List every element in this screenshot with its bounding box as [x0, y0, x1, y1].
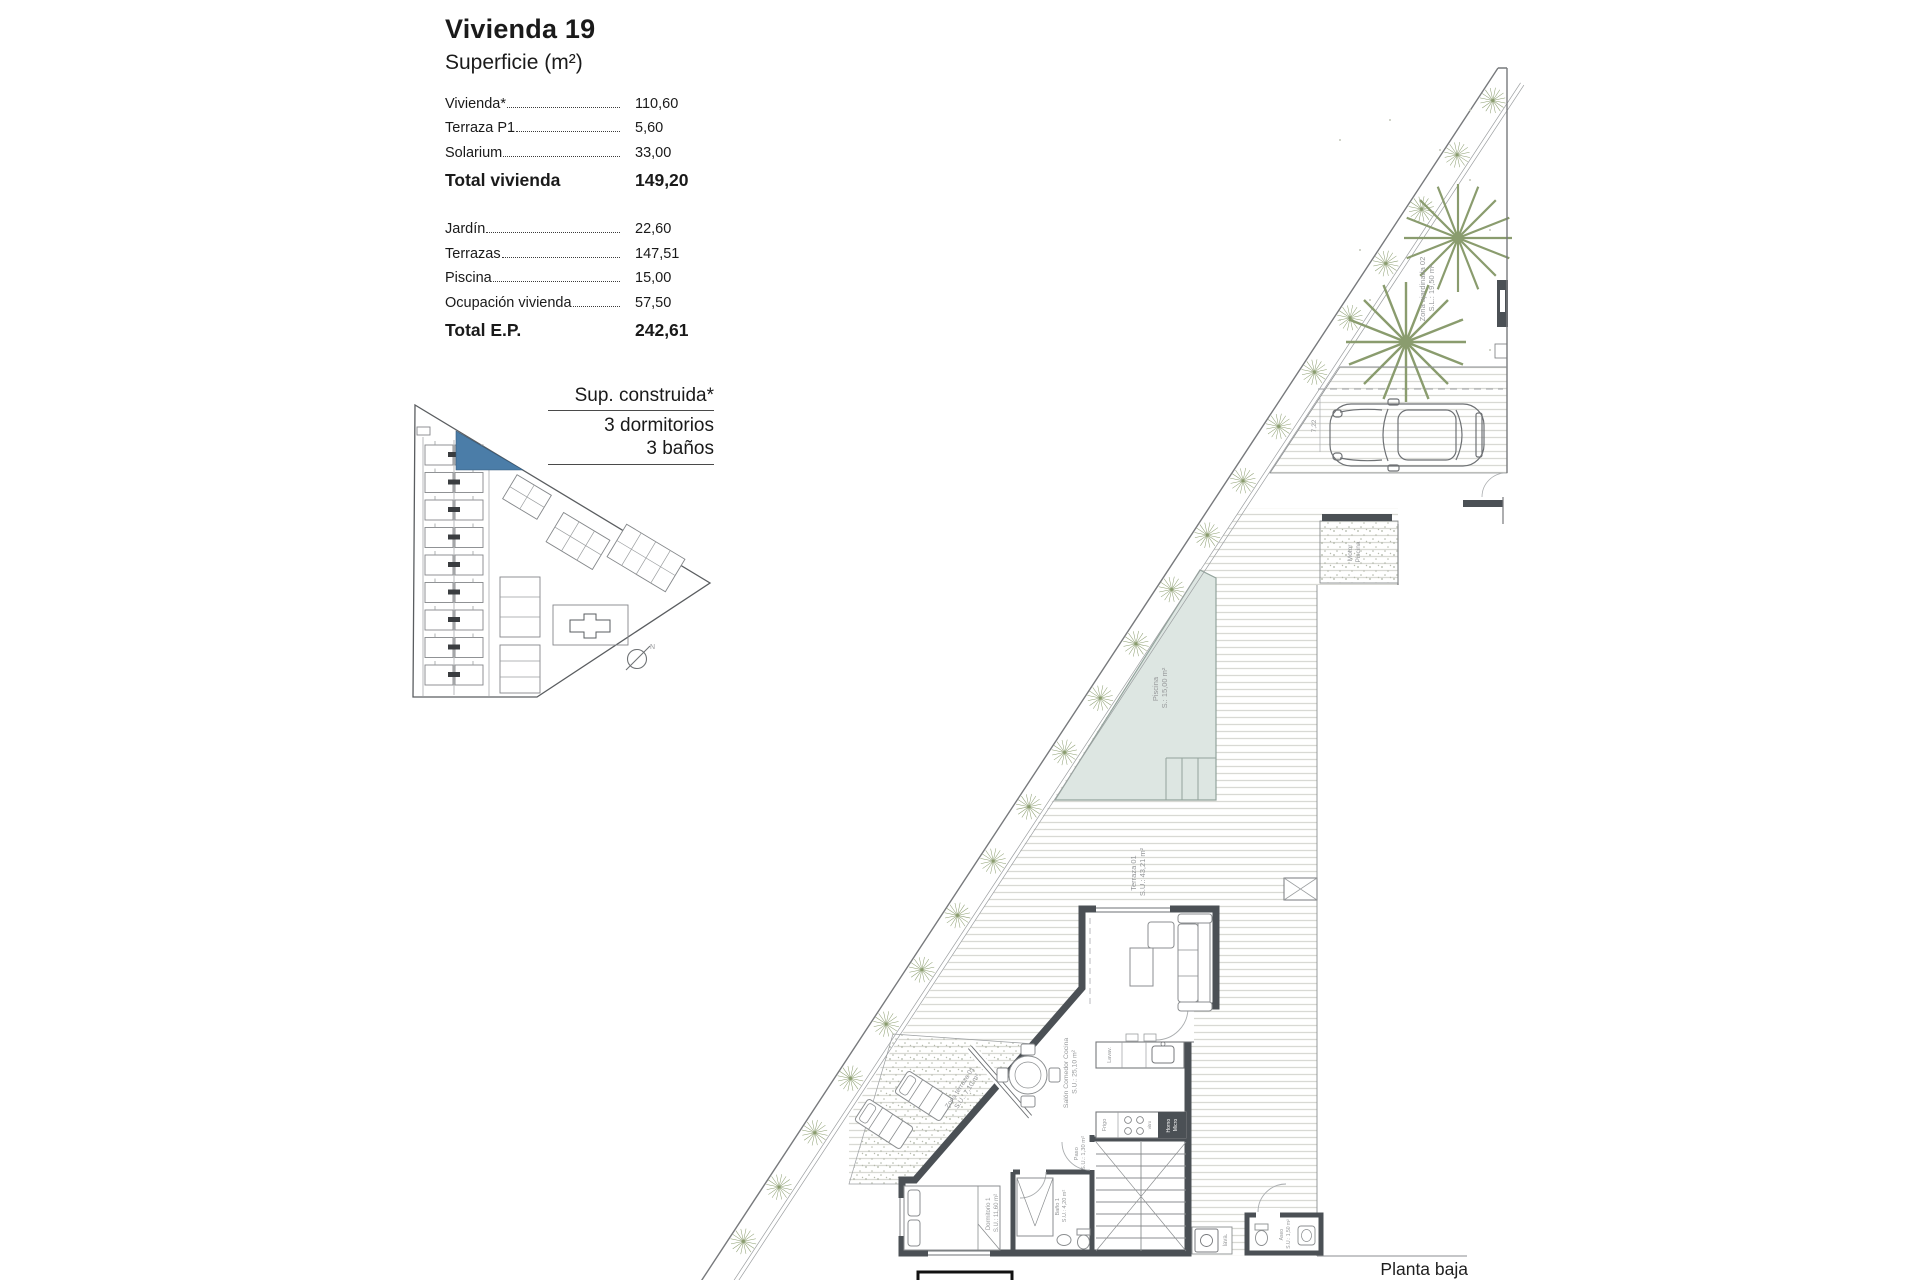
surface-subtitle: Superficie (m²): [445, 51, 717, 75]
compass-icon: N: [626, 644, 655, 670]
total-value: 149,20: [623, 170, 717, 191]
oven-label: Horno Micro: [1166, 1117, 1179, 1132]
plan-footer-label: Planta baja: [1280, 1259, 1468, 1280]
table-row: Piscina 15,00: [445, 262, 717, 287]
parking-dim-label: 7,22: [1311, 419, 1318, 432]
row-value: 5,60: [623, 120, 717, 136]
site-cluster-3: [607, 524, 685, 592]
total-label: Total E.P.: [445, 320, 521, 341]
table-row: Solarium 33,00: [445, 136, 717, 161]
dotted-leader: [493, 281, 620, 282]
total-value: 242,61: [623, 320, 717, 341]
info-panel: Vivienda 19 Superficie (m²) Vivienda* 11…: [445, 14, 717, 341]
plan-canvas: N Piscina S.: 15,00 m² Zona terraza 01: [0, 0, 1920, 1280]
private-garden: Zona ajardinada 02 S.L.: 19,50 m²: [1339, 109, 1512, 402]
pool-motor-label: Motor Piscina: [1347, 541, 1362, 562]
fridge-label: Frigo: [1102, 1119, 1108, 1132]
floor-plan-page: N Piscina S.: 15,00 m² Zona terraza 01: [0, 0, 1920, 1280]
row-value: 57,50: [623, 295, 717, 311]
surface-table: Vivienda* 110,60 Terraza P1 5,60 Solariu…: [445, 87, 717, 341]
spec-block: Sup. construida* 3 dormitorios 3 baños: [548, 384, 714, 465]
row-value: 110,60: [623, 96, 717, 112]
main-floor-plan: Piscina S.: 15,00 m² Zona terraza 01 S.U…: [696, 68, 1523, 1280]
highlighted-unit: [456, 431, 523, 470]
site-building: [570, 614, 610, 638]
row-label: Ocupación vivienda: [445, 295, 572, 311]
gate-swing-arc: [1482, 473, 1506, 497]
row-label: Vivienda*: [445, 96, 506, 112]
pool: Piscina S.: 15,00 m²: [1055, 570, 1216, 800]
row-label: Jardín: [445, 221, 485, 237]
laundry-niche: lava.: [1192, 1227, 1232, 1254]
row-label: Terrazas: [445, 246, 501, 262]
dotted-leader: [516, 131, 620, 132]
table-row: Jardín 22,60: [445, 213, 717, 238]
laundry-label: lava.: [1223, 1233, 1229, 1246]
row-value: 33,00: [623, 145, 717, 161]
table-row: Terraza P1 5,60: [445, 112, 717, 137]
row-label: Piscina: [445, 270, 492, 286]
dotted-leader: [507, 107, 620, 108]
row-label: Solarium: [445, 145, 502, 161]
parking-area: [1270, 367, 1507, 473]
table-row: Terrazas 147,51: [445, 237, 717, 262]
total-row: Total E.P. 242,61: [445, 311, 717, 341]
total-row: Total vivienda 149,20: [445, 161, 717, 191]
skylight-marker: [1284, 878, 1317, 900]
terrace-label: Terraza 01 S.U.: 43,21 m²: [1129, 847, 1147, 896]
dishwasher-label: Lavav.: [1107, 1047, 1113, 1063]
dotted-leader: [502, 257, 620, 258]
kitchen-counter: Frigo vitro Horno Micro: [1096, 1112, 1186, 1138]
dotted-leader: [503, 156, 620, 157]
table-gap: [445, 191, 717, 213]
spec-bathrooms: 3 baños: [548, 437, 714, 460]
hob-label: vitro: [1147, 1120, 1152, 1129]
garden-zone-label: Zona ajardinada 02 S.L.: 19,50 m²: [1418, 255, 1436, 322]
row-value: 147,51: [623, 246, 717, 262]
spec-built-surface: Sup. construida*: [548, 384, 714, 411]
page-title: Vivienda 19: [445, 14, 717, 45]
dotted-leader: [486, 232, 620, 233]
site-cluster-1: [503, 475, 552, 520]
row-value: 15,00: [623, 270, 717, 286]
compass-north-label: N: [650, 644, 655, 651]
site-boundary-lines: Motor Piscina 7,22: [1284, 68, 1507, 1256]
oven-micro: [1158, 1112, 1186, 1138]
coffee-table: [1130, 948, 1153, 986]
garden-dots: [1339, 109, 1491, 351]
table-row: Ocupación vivienda 57,50: [445, 286, 717, 311]
scale-box: [918, 1272, 1012, 1280]
row-label: Terraza P1: [445, 120, 515, 136]
dotted-leader: [573, 306, 620, 307]
spec-bedrooms: 3 dormitorios: [548, 414, 714, 437]
total-label: Total vivienda: [445, 170, 560, 191]
site-cluster-2: [546, 513, 610, 570]
table-row: Vivienda* 110,60: [445, 87, 717, 112]
row-value: 22,60: [623, 221, 717, 237]
